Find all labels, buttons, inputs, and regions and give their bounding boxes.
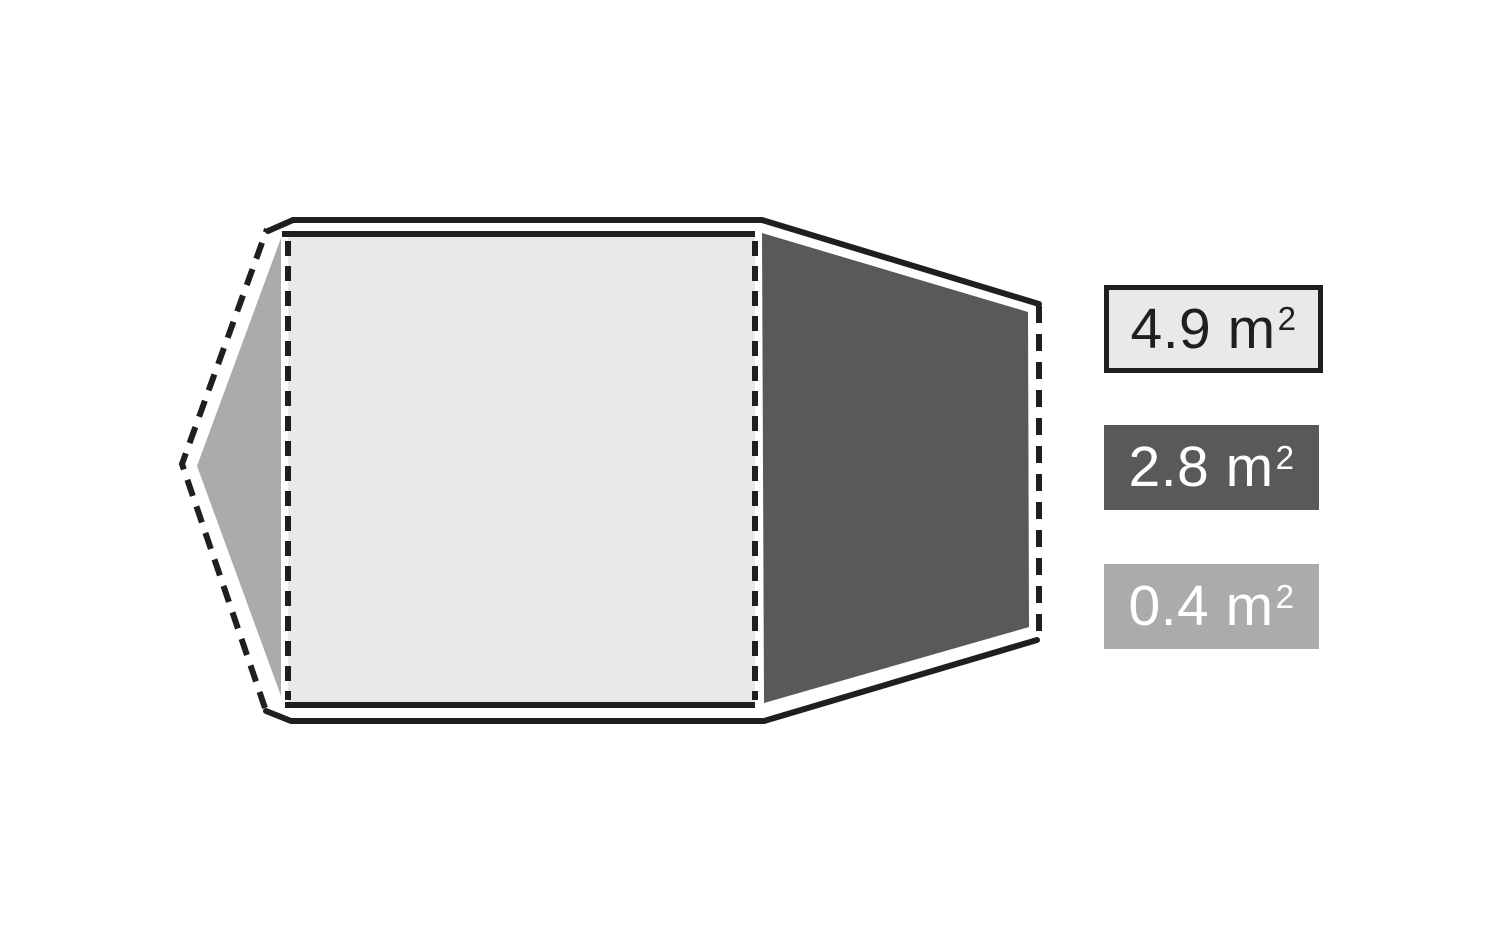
inner-tent-region	[288, 234, 755, 705]
legend-item-inner-tent: 4.9 m2	[1104, 285, 1323, 373]
legend-item-left-vestibule: 0.4 m2	[1104, 564, 1319, 649]
legend-label-right-vestibule: 2.8 m2	[1129, 439, 1295, 496]
page-canvas: 4.9 m2 2.8 m2 0.4 m2	[0, 0, 1500, 938]
legend-item-right-vestibule: 2.8 m2	[1104, 425, 1319, 510]
legend-label-left-vestibule: 0.4 m2	[1129, 578, 1295, 635]
legend-label-right-vestibule-exponent: 2	[1276, 440, 1295, 477]
legend-label-inner-tent: 4.9 m2	[1131, 301, 1297, 358]
legend-label-left-vestibule-exponent: 2	[1276, 579, 1295, 616]
right-vestibule-region	[762, 233, 1029, 703]
legend-label-inner-tent-exponent: 2	[1278, 301, 1297, 338]
